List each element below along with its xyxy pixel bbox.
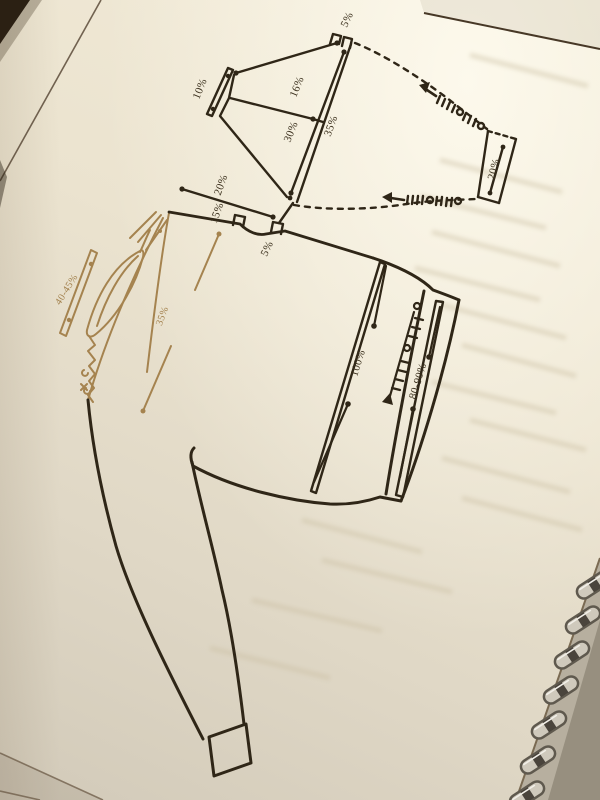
hem-line: [193, 466, 401, 504]
cuff-outline: [209, 724, 251, 776]
measure-neck-20: [182, 189, 273, 217]
facing-page-top-right: [420, 0, 600, 49]
sleeve-cap-faded-edge: [88, 218, 163, 400]
label-neck-drop-5pct: 5%: [259, 239, 276, 258]
underarm-curve: [191, 448, 194, 466]
sleeve-outline: [88, 400, 251, 776]
tip-connector: [279, 203, 293, 223]
schematic-drawing: 5% 10% 16% 30% 35% 20% 20% 15% 5% 35% 40…: [0, 0, 600, 800]
label-sleeve-cap-30pct: 30%: [282, 120, 301, 144]
top-edge: [236, 43, 337, 73]
collar-sketch: [60, 212, 222, 414]
rotation-arrow-top-icon: [419, 82, 484, 129]
apex-notch-icon: [330, 34, 352, 48]
right-edge: [297, 44, 351, 202]
body-left-edge-faded: [147, 213, 169, 372]
sleeve-right-edge: [192, 462, 244, 724]
left-edge: [220, 75, 287, 197]
photo-of-schematic-page: 5% 10% 16% 30% 35% 20% 20% 15% 5% 35% 40…: [0, 0, 600, 800]
sleeve-left-edge: [88, 400, 203, 739]
label-sleeve-cap-10pct: 10%: [191, 77, 210, 101]
label-sleeve-cap-5pct: 5%: [339, 10, 356, 29]
middle-line: [230, 98, 323, 122]
label-armhole-35pct: 35%: [154, 305, 171, 327]
label-neck-20pct: 20%: [212, 173, 231, 197]
placket-rect: [311, 262, 385, 493]
label-body-100pct: 100%: [348, 348, 367, 378]
label-sleeve-cap-16pct: 16%: [288, 75, 307, 99]
